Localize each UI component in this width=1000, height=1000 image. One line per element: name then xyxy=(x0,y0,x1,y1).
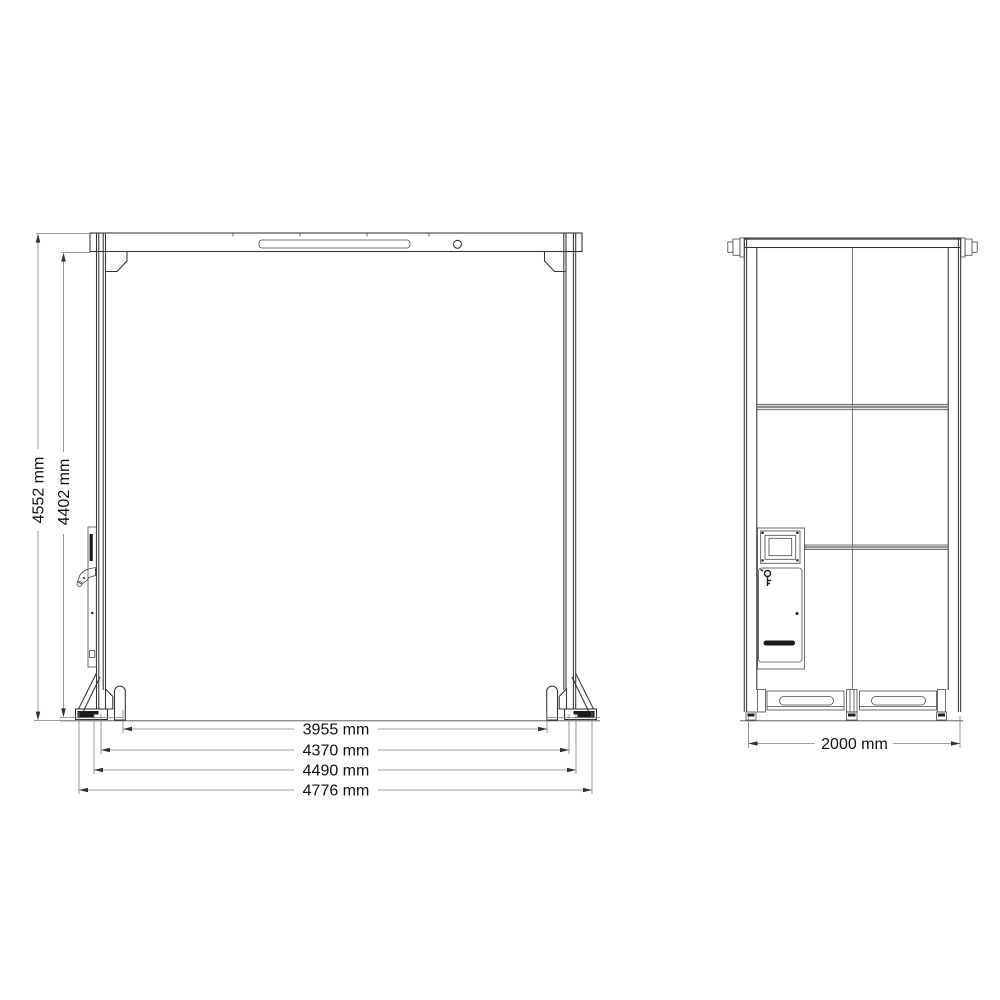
left-corner-gusset xyxy=(106,252,128,272)
front-view xyxy=(60,233,600,721)
right-column xyxy=(564,233,576,709)
dim-label-4776: 4776 mm xyxy=(303,782,370,799)
dimension-4776: 4776 mm xyxy=(79,782,592,799)
screen-bezel xyxy=(761,531,800,563)
beam-slot xyxy=(259,240,410,248)
lower-crossbar xyxy=(805,545,948,550)
side-latch-assembly xyxy=(77,527,97,667)
panel-enclosure xyxy=(758,528,805,669)
top-beam-weld-ticks xyxy=(233,234,429,237)
drawing-canvas: 4552 mm 4402 mm 3955 xyxy=(0,0,1000,1000)
dim-label-4402: 4402 mm xyxy=(56,459,73,526)
bezel-screws xyxy=(762,532,799,562)
left-foot-clamp xyxy=(78,711,99,718)
side-left-column xyxy=(744,238,757,712)
left-lifting-pin xyxy=(728,238,745,257)
leveling-feet xyxy=(746,712,947,720)
base-post-right xyxy=(938,690,946,713)
dimension-4370: 4370 mm xyxy=(101,742,569,759)
door-knob xyxy=(796,612,799,615)
latch-catch xyxy=(90,651,95,658)
base-assembly xyxy=(746,690,947,721)
beam-hole xyxy=(454,240,462,248)
control-panel xyxy=(758,528,805,669)
side-right-column xyxy=(948,238,961,712)
left-foot xyxy=(76,673,126,720)
door-handle-slot xyxy=(764,641,796,646)
dim-label-4370: 4370 mm xyxy=(303,742,370,759)
base-post-left xyxy=(758,690,766,713)
side-view xyxy=(728,238,977,721)
dim-label-2000: 2000 mm xyxy=(821,736,888,753)
right-corner-gusset xyxy=(545,252,567,272)
key-lock-icon xyxy=(761,570,772,587)
right-foot-block xyxy=(559,689,566,709)
right-skid xyxy=(860,691,937,710)
dim-label-3955: 3955 mm xyxy=(303,721,370,738)
right-foot xyxy=(547,673,597,720)
left-skid xyxy=(767,691,844,710)
dim-label-4490: 4490 mm xyxy=(303,762,370,779)
base-post-center xyxy=(847,690,858,713)
right-skid-slot xyxy=(872,697,926,706)
dimension-4402: 4402 mm xyxy=(55,253,90,718)
dimension-3955: 3955 mm xyxy=(123,721,547,738)
lever-pin xyxy=(83,577,85,579)
latch-rivet xyxy=(91,612,93,614)
technical-drawing: 4552 mm 4402 mm 3955 xyxy=(0,0,1000,1000)
side-view-dimensions: 2000 mm xyxy=(749,716,961,753)
dimension-4490: 4490 mm xyxy=(94,762,576,779)
panel-door xyxy=(759,568,803,662)
display-screen xyxy=(769,538,792,555)
left-foot-block xyxy=(106,689,113,709)
right-foot-clamp xyxy=(574,711,595,718)
dim-label-4552: 4552 mm xyxy=(31,457,48,524)
right-lifting-pin xyxy=(961,238,978,257)
front-view-dimensions: 4552 mm 4402 mm 3955 xyxy=(30,234,593,800)
top-beam xyxy=(90,233,582,252)
left-skid-slot xyxy=(780,697,834,706)
latch-bar xyxy=(90,534,93,561)
right-anchor-slot xyxy=(547,686,558,720)
left-anchor-slot xyxy=(115,686,126,720)
left-column xyxy=(97,233,106,709)
dimension-2000: 2000 mm xyxy=(749,716,961,753)
